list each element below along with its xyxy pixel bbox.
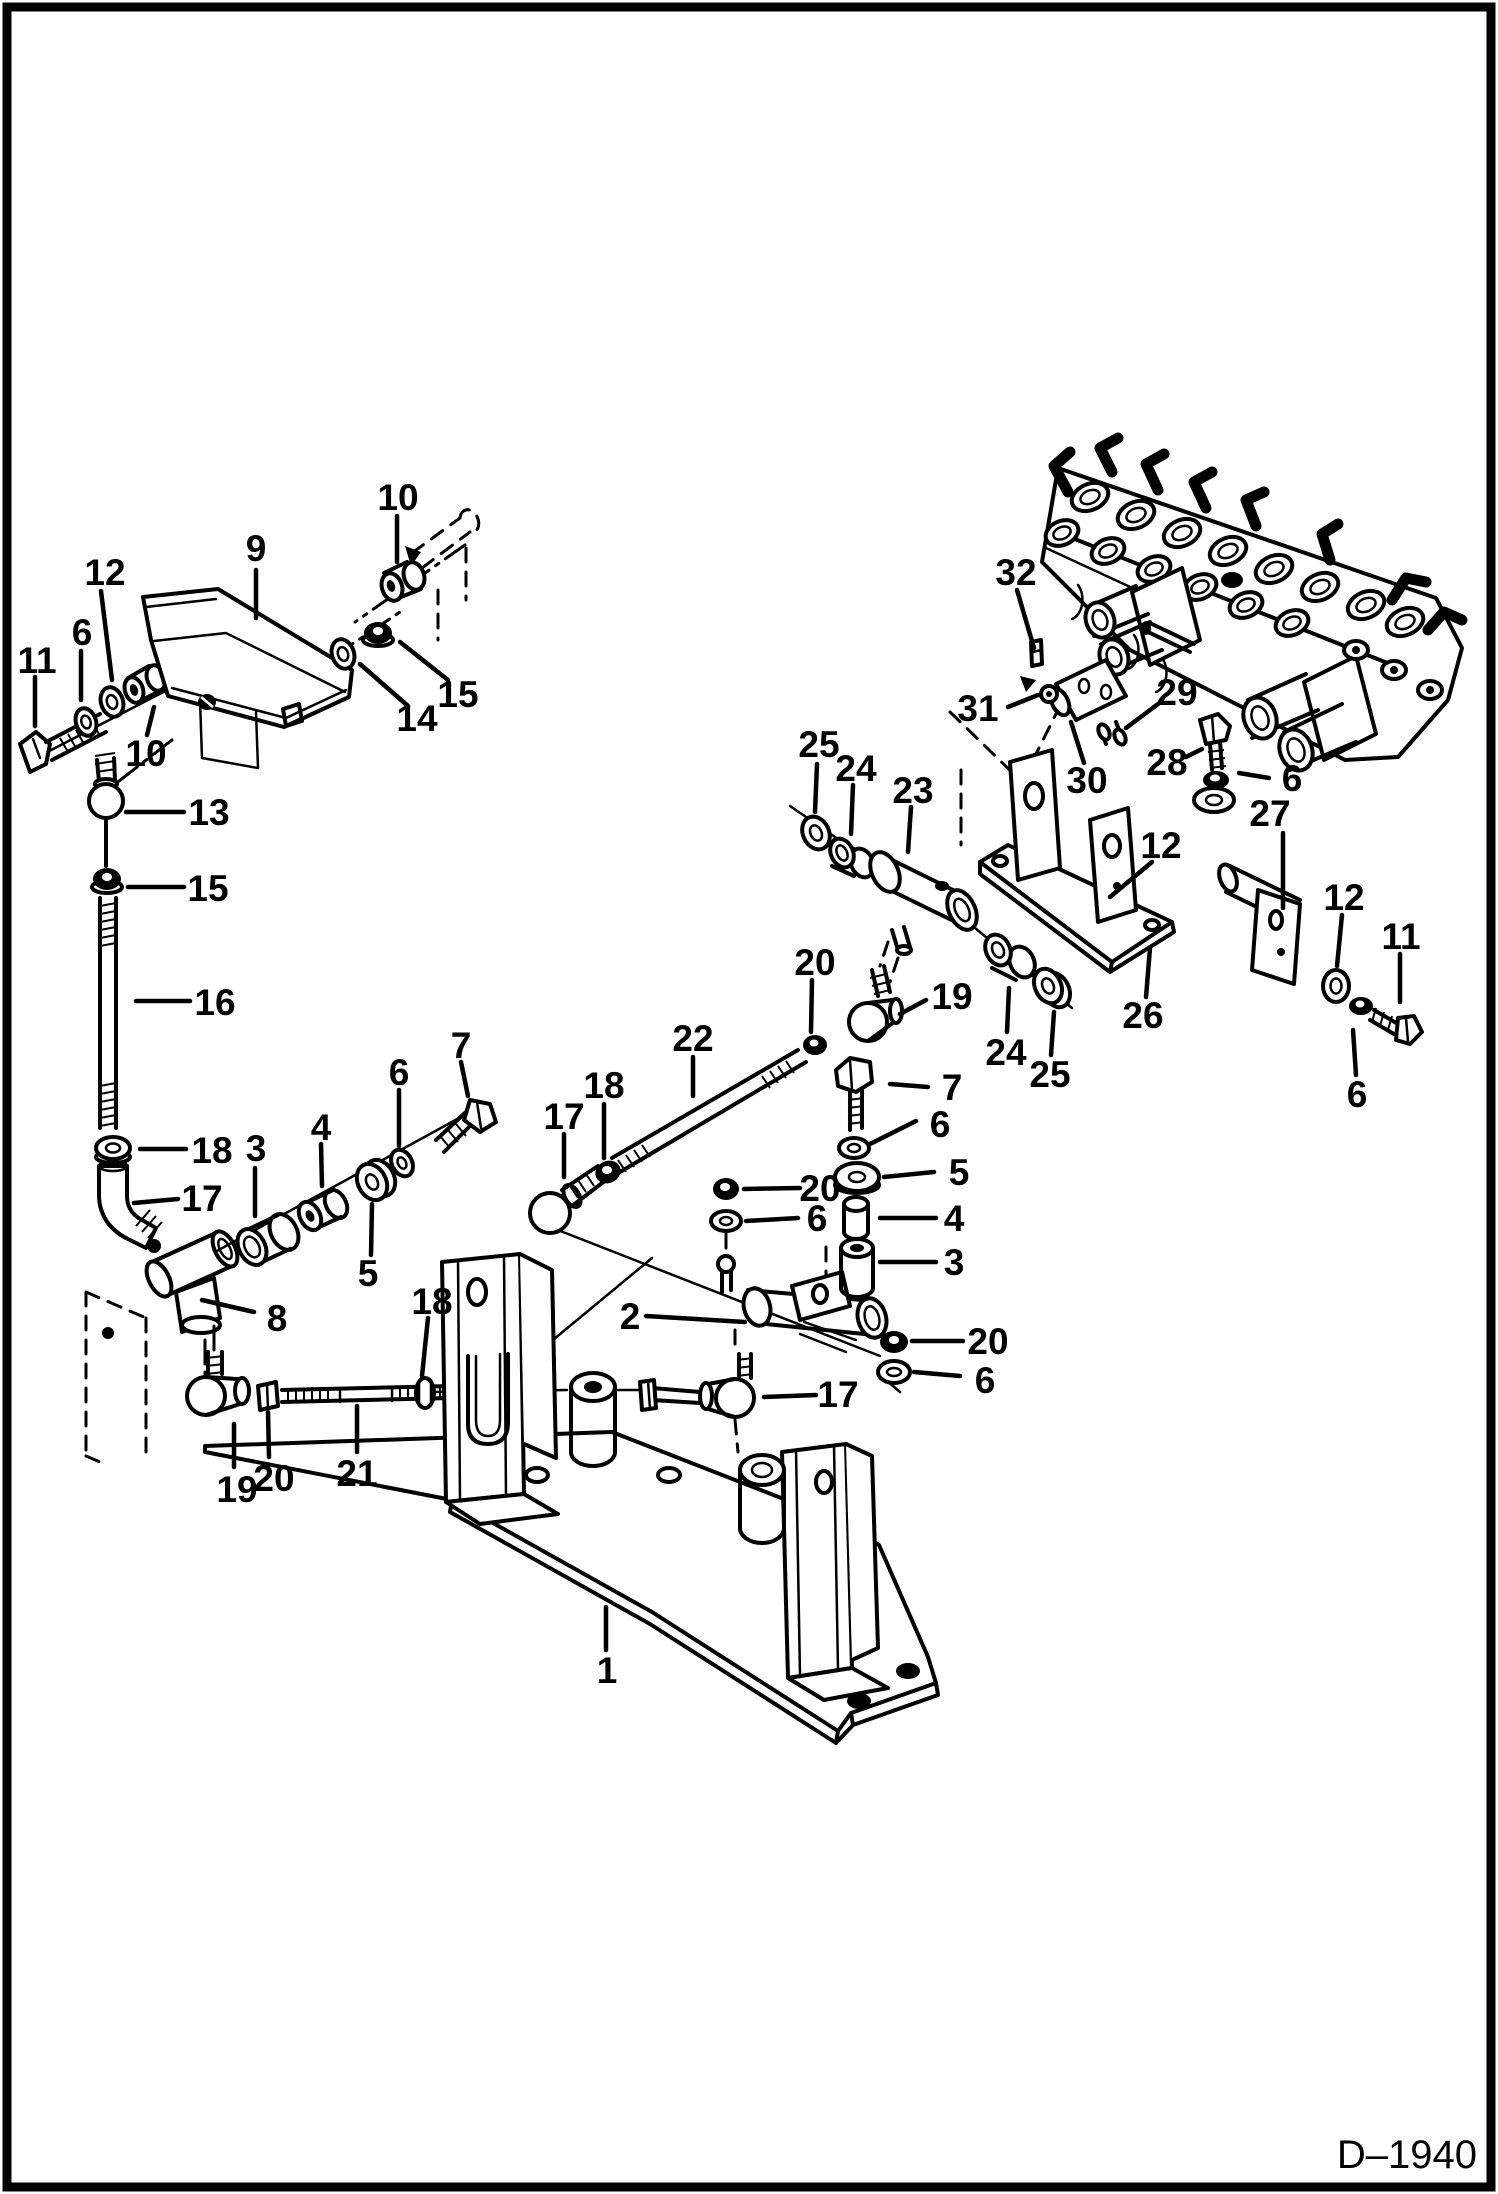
- leader-line: [884, 1172, 934, 1177]
- part-callout: 25: [1029, 1054, 1070, 1095]
- part-callout: 12: [1323, 877, 1364, 918]
- pivot-assembly-art: [545, 1225, 910, 1452]
- leader-line: [1008, 695, 1038, 707]
- part-callout: 23: [892, 770, 933, 811]
- part-callout: 4: [311, 1107, 332, 1148]
- part-callout: 12: [84, 552, 125, 593]
- part-callout: 31: [957, 688, 998, 729]
- leader-line: [851, 785, 853, 834]
- leader-line: [646, 1316, 745, 1322]
- leader-line: [1017, 590, 1034, 648]
- part-callout: 20: [253, 1458, 294, 1499]
- leader-line: [1186, 749, 1202, 757]
- leader-line: [371, 1204, 372, 1255]
- part-callout: 14: [396, 698, 438, 739]
- part-callout: 17: [543, 1096, 584, 1137]
- part-callout: 25: [798, 724, 839, 765]
- part-callout: 16: [194, 982, 235, 1023]
- part-callout: 6: [1347, 1074, 1368, 1115]
- part-callout: 10: [377, 477, 418, 518]
- part-callout: 19: [931, 976, 972, 1017]
- part-callout: 28: [1146, 742, 1187, 783]
- leader-line: [870, 1121, 916, 1144]
- part-callout: 22: [672, 1018, 713, 1059]
- part-callout: 9: [246, 528, 267, 569]
- parts-diagram-page: 1091261115141013151618173467581819202121…: [0, 0, 1498, 2194]
- leader-line: [1007, 988, 1009, 1032]
- leader-line: [147, 707, 154, 735]
- leader-line: [134, 1199, 178, 1203]
- drawing-number: D–1940: [1337, 2133, 1477, 2177]
- part-callout: 11: [1381, 916, 1420, 957]
- leader-line: [422, 1318, 428, 1376]
- leader-line: [815, 764, 817, 812]
- part-callout: 6: [930, 1104, 951, 1145]
- part-callout: 6: [389, 1052, 410, 1093]
- leader-line: [321, 1144, 322, 1186]
- leader-line: [890, 1084, 928, 1087]
- part-callout: 29: [1156, 672, 1197, 713]
- leader-line: [1239, 773, 1269, 778]
- leader-line: [461, 1062, 468, 1096]
- leader-line: [908, 807, 911, 852]
- leader-line: [744, 1188, 800, 1189]
- part-callout: 18: [191, 1130, 232, 1171]
- part-callout: 32: [995, 552, 1036, 593]
- part-callout: 15: [437, 674, 478, 715]
- part-callout: 27: [1249, 793, 1290, 834]
- part-callout: 6: [72, 612, 93, 653]
- leader-line: [900, 1000, 926, 1014]
- part-callout: 15: [187, 868, 228, 909]
- part-callout: 3: [246, 1128, 267, 1169]
- part-callout: 2: [620, 1296, 641, 1337]
- part-callout: 3: [944, 1242, 965, 1283]
- leader-line: [746, 1218, 798, 1221]
- leader-line: [1353, 1030, 1356, 1075]
- part-callout: 18: [583, 1065, 624, 1106]
- part-callout: 10: [125, 733, 166, 774]
- leader-line: [1126, 704, 1158, 728]
- part-callout: 6: [975, 1360, 996, 1401]
- part-callout: 21: [336, 1453, 377, 1494]
- part-callout: 6: [807, 1198, 828, 1239]
- leader-line: [1337, 915, 1342, 966]
- part-callout: 30: [1066, 760, 1107, 801]
- part-callout: 13: [188, 792, 229, 833]
- part-callout: 1: [597, 1650, 618, 1691]
- part-callout: 11: [17, 640, 56, 681]
- part-callout: 26: [1122, 995, 1163, 1036]
- part-callout: 12: [1140, 825, 1181, 866]
- leader-line: [1146, 948, 1150, 997]
- part-callout: 4: [944, 1198, 965, 1239]
- part-callout: 18: [411, 1281, 452, 1322]
- part-callout: 24: [985, 1032, 1027, 1073]
- leader-line: [268, 1412, 269, 1457]
- leader-line: [1051, 1012, 1054, 1055]
- exploded-view-diagram: 1091261115141013151618173467581819202121…: [0, 0, 1498, 2194]
- center-link-art: [530, 942, 902, 1297]
- part-callout: 7: [942, 1067, 963, 1108]
- part-callout: 8: [267, 1298, 288, 1339]
- part-callout: 5: [949, 1152, 970, 1193]
- part-callout: 7: [451, 1025, 472, 1066]
- leader-line: [1071, 722, 1084, 763]
- part-callout: 19: [216, 1469, 257, 1510]
- part-callout: 20: [967, 1321, 1008, 1362]
- part-callout: 17: [817, 1374, 858, 1415]
- part-callout: 5: [358, 1253, 379, 1294]
- base-plate-art: [205, 1254, 938, 1743]
- part-callout: 24: [835, 748, 877, 789]
- leader-line: [764, 1395, 816, 1397]
- part-callout: 20: [794, 942, 835, 983]
- leader-line: [914, 1372, 960, 1376]
- leader-line: [101, 591, 112, 680]
- part-callout: 17: [181, 1178, 222, 1219]
- leader-line: [811, 980, 812, 1032]
